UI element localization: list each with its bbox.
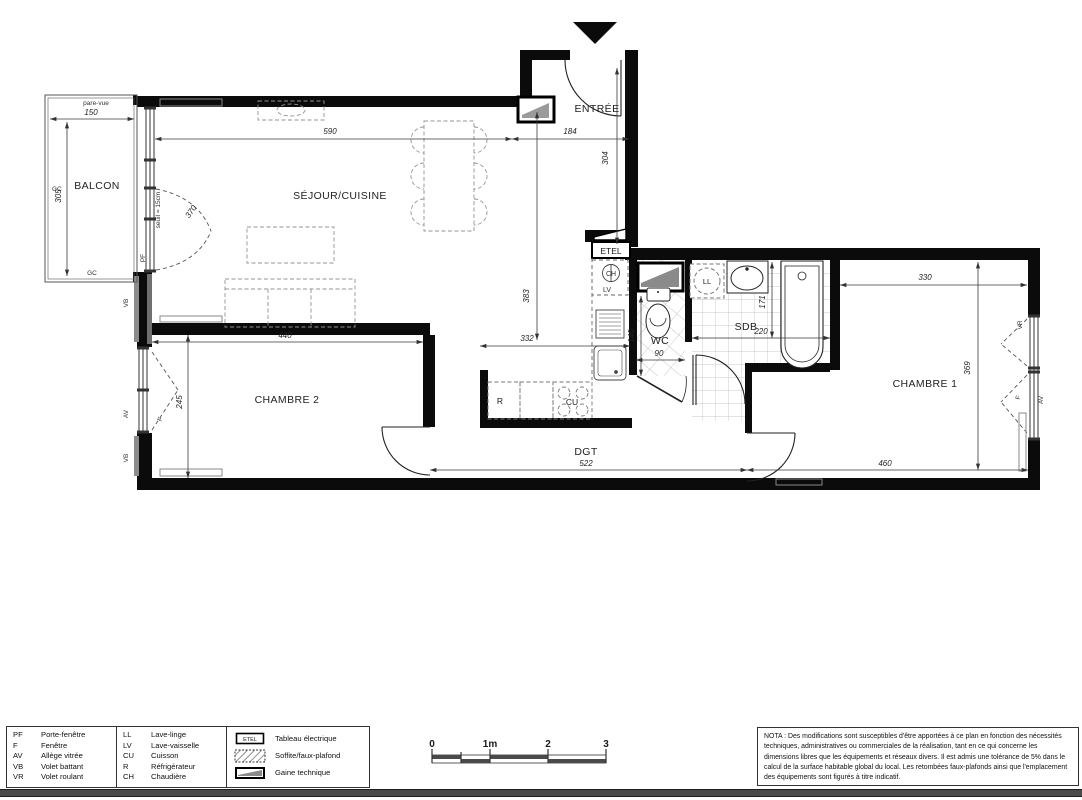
chambre1-door <box>747 433 795 481</box>
gc-left-label: GC <box>52 186 62 193</box>
dim-sejour-w: 590 <box>323 127 337 136</box>
dim-pf-w: 370 <box>183 203 198 220</box>
legend-col-2: LLLave-linge LVLave-vaisselle CUCuisson … <box>117 727 227 787</box>
ch-label: CH <box>606 271 616 278</box>
etel-label: ETEL <box>600 246 622 256</box>
legend-label: Volet battant <box>41 762 83 773</box>
legend-symbol-label: Soffite/faux-plafond <box>275 751 340 760</box>
svg-text:ETEL: ETEL <box>243 737 257 743</box>
legend-label: Volet roulant <box>41 772 83 783</box>
ll-label: LL <box>703 277 711 286</box>
windows <box>137 107 1040 440</box>
label-sdb: SDB <box>735 321 758 333</box>
vb-label-2: VB <box>123 454 130 463</box>
av-label-ch1: AV <box>1038 395 1045 404</box>
dim-entree-h: 304 <box>601 151 610 165</box>
legend-abbr: VB <box>13 762 41 773</box>
dim-balcon-w: 150 <box>84 108 98 117</box>
seuil-label: seuil = 15cm <box>155 192 162 229</box>
legend-label: Chaudière <box>151 772 186 783</box>
legend-label: Cuisson <box>151 751 178 762</box>
dim-sdb-h: 171 <box>758 295 767 308</box>
f-label-ch1: F <box>1015 395 1023 401</box>
legend-label: Porte-fenêtre <box>41 730 85 741</box>
legend-label: Réfrigérateur <box>151 762 195 773</box>
scale-2: 2 <box>545 739 551 750</box>
legend-box: PFPorte-fenêtre FFenêtre AVAllège vitrée… <box>6 726 370 788</box>
legend-abbr: PF <box>13 730 41 741</box>
tableau-electrique-icon: ETEL <box>233 732 267 745</box>
legend-abbr: R <box>123 762 151 773</box>
dim-chambre2-w: 440 <box>278 331 292 340</box>
scale-bar: 0 1m 2 3 <box>420 735 630 775</box>
dim-chambre1-h: 369 <box>963 361 972 375</box>
vestibule-floor-tiles <box>692 363 745 421</box>
legend-label: Allège vitrée <box>41 751 83 762</box>
legend-symbol-label: Gaine technique <box>275 768 330 777</box>
legend-col-symbols: ETEL Tableau électrique Soffite/faux-pla… <box>227 727 369 787</box>
wc-fixtures <box>646 288 670 338</box>
legend-abbr: CU <box>123 751 151 762</box>
bathtub <box>781 261 823 368</box>
legend-abbr: LL <box>123 730 151 741</box>
legend-abbr: F <box>13 741 41 752</box>
dim-sejour-h: 383 <box>522 289 531 303</box>
floor-plan-page: ETEL CH LV R CU LL <box>0 0 1082 800</box>
vb-label-1: VB <box>123 299 130 308</box>
label-dgt: DGT <box>574 446 598 458</box>
scale-0: 0 <box>429 739 435 750</box>
dim-wc-h: 140 <box>627 329 636 343</box>
r-label: R <box>497 396 503 406</box>
legend-abbr: LV <box>123 741 151 752</box>
toilet-bowl <box>646 304 670 338</box>
legend-col-1: PFPorte-fenêtre FFenêtre AVAllège vitrée… <box>7 727 117 787</box>
label-chambre1: CHAMBRE 1 <box>893 378 958 390</box>
legend-label: Fenêtre <box>41 741 67 752</box>
legend-abbr: VR <box>13 772 41 783</box>
bottom-title-bar <box>0 789 1082 797</box>
coffee-table <box>247 227 334 263</box>
toilet-tank <box>647 288 670 301</box>
legend-abbr: CH <box>123 772 151 783</box>
legend-label: Lave-vaisselle <box>151 741 199 752</box>
label-sejour: SÉJOUR/CUISINE <box>293 189 387 202</box>
dim-chambre1-w-top: 330 <box>918 273 932 282</box>
sofa <box>225 279 355 327</box>
chambre2-door <box>382 427 430 475</box>
walls <box>133 50 1040 490</box>
scale-3: 3 <box>603 739 609 750</box>
gc-bottom-label: GC <box>87 270 97 277</box>
wc-door <box>637 376 686 402</box>
label-balcon: BALCON <box>74 180 120 192</box>
gaine-technique-icon <box>233 766 267 780</box>
dimension-lines <box>50 68 1028 478</box>
dim-wc-w: 90 <box>655 349 664 358</box>
dim-chambre2-h: 245 <box>175 395 184 410</box>
legend-label: Lave-linge <box>151 730 186 741</box>
pf-label: PF <box>140 254 147 262</box>
dining-table <box>424 121 474 231</box>
label-wc: WC <box>651 335 669 347</box>
label-chambre2: CHAMBRE 2 <box>255 394 320 406</box>
nota-box: NOTA : Des modifications sont susceptibl… <box>757 727 1079 786</box>
lv-label: LV <box>603 287 611 294</box>
gaine-technique-wc <box>638 263 683 291</box>
dim-chambre1-w-bot: 460 <box>878 459 892 468</box>
cu-label: CU <box>566 397 578 407</box>
scale-bar-graphic <box>432 749 606 763</box>
legend-symbol-label: Tableau électrique <box>275 734 337 743</box>
nota-text: NOTA : Des modifications sont susceptibl… <box>764 733 1067 781</box>
scale-1m: 1m <box>483 739 498 750</box>
washbasin <box>727 261 768 293</box>
dim-entree-w: 184 <box>563 127 577 136</box>
floor-plan-drawing: ETEL CH LV R CU LL <box>0 0 1082 722</box>
refrigerator-box <box>488 382 520 419</box>
kitchen <box>488 258 628 419</box>
pare-vue-label: pare-vue <box>83 100 109 107</box>
dim-dgt-w: 522 <box>579 459 593 468</box>
label-entree: ENTRÉE <box>575 102 620 115</box>
entrance-arrow-icon <box>573 22 617 44</box>
legend-abbr: AV <box>13 751 41 762</box>
vr-label-ch1: VR <box>1017 320 1024 329</box>
dim-cuisine-w: 332 <box>520 334 534 343</box>
gaine-technique-entree <box>518 97 554 122</box>
av-label-left: AV <box>123 409 130 418</box>
furniture <box>225 101 487 327</box>
wall-labels: pare-vue GC GC seuil = 15cm PF VB AV VB … <box>52 100 1045 462</box>
soffite-icon <box>233 749 267 763</box>
